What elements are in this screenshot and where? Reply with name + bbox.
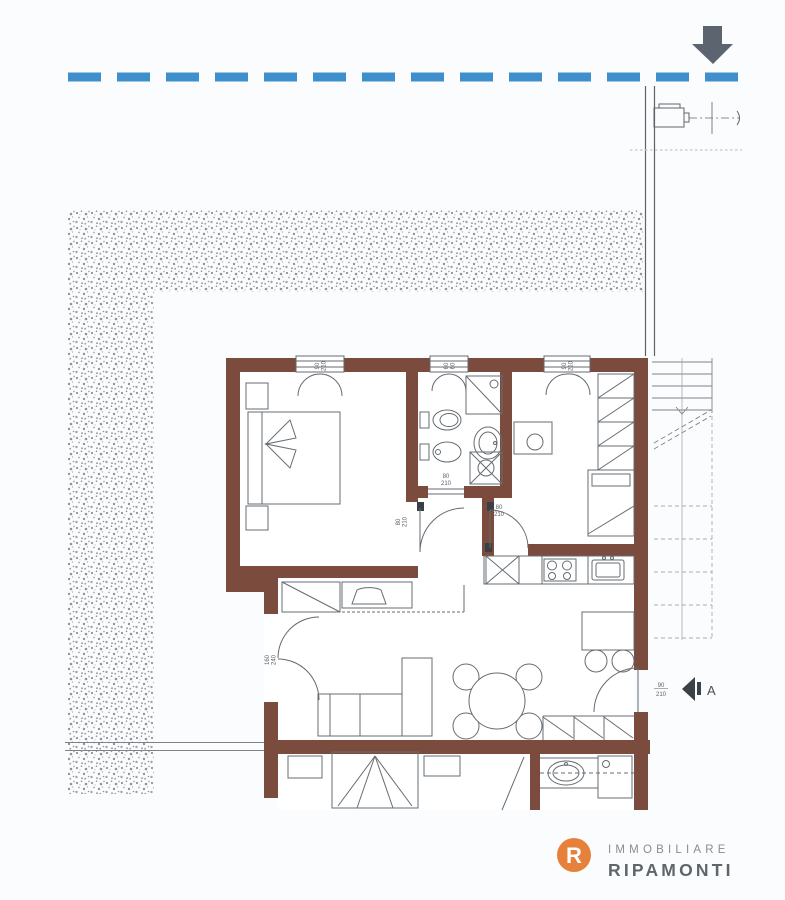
section-arrow-icon: [682, 677, 695, 701]
svg-text:160: 160: [265, 654, 271, 665]
svg-text:210: 210: [403, 516, 409, 527]
logo-name: RIPAMONTI: [608, 860, 734, 880]
agency-logo: R IMMOBILIARE RIPAMONTI: [557, 838, 734, 880]
dining-table: [469, 673, 525, 729]
svg-text:60: 60: [444, 362, 450, 369]
svg-text:210: 210: [494, 512, 505, 518]
svg-text:90: 90: [658, 683, 665, 689]
door-entry-dim: 160 240: [265, 654, 278, 665]
svg-text:240: 240: [272, 654, 278, 665]
down-arrow-icon: [692, 26, 733, 64]
svg-text:60: 60: [451, 362, 457, 369]
gravel-texture-left-column: [68, 292, 154, 794]
svg-text:R: R: [566, 843, 582, 868]
svg-text:A: A: [707, 683, 716, 698]
door-terrace-dim: 90 210: [654, 683, 668, 698]
svg-text:210: 210: [656, 692, 667, 698]
gravel-texture-top-band: [68, 210, 643, 292]
floor-plan-drawing: 90 210 60 60 90 210 80 210 80 210: [0, 0, 785, 900]
gate-symbol: [654, 102, 740, 134]
svg-text:210: 210: [569, 360, 575, 371]
svg-text:80: 80: [496, 505, 503, 511]
svg-text:210: 210: [322, 360, 328, 371]
svg-text:210: 210: [441, 481, 452, 487]
svg-text:90: 90: [315, 362, 321, 369]
svg-text:90: 90: [562, 362, 568, 369]
fence-lines: [646, 86, 655, 356]
external-staircase: [652, 358, 712, 640]
floor-plan-page: 90 210 60 60 90 210 80 210 80 210: [0, 0, 785, 900]
section-marker-a: A: [682, 677, 716, 701]
logo-tagline: IMMOBILIARE: [608, 844, 730, 856]
window-bathroom-dim: 60 60: [444, 362, 457, 369]
svg-text:80: 80: [443, 474, 450, 480]
svg-text:80: 80: [396, 518, 402, 525]
